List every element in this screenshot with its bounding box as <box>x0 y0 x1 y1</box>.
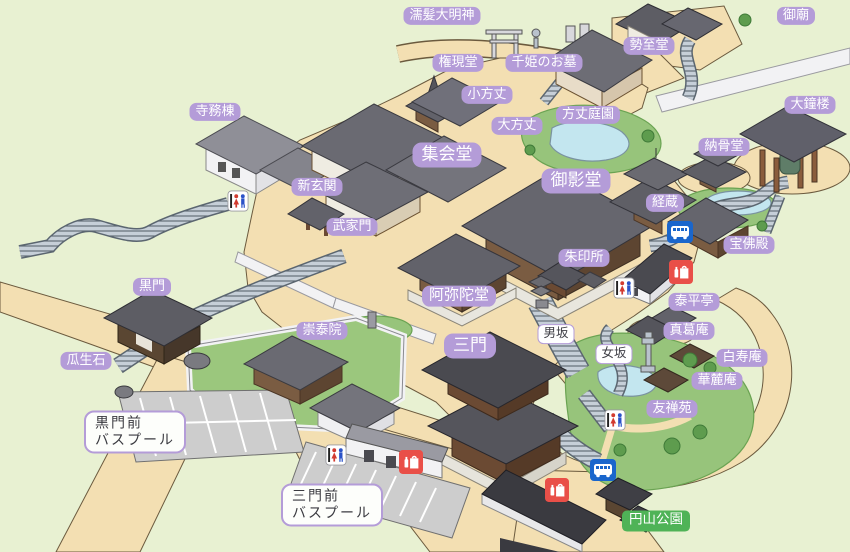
map-illustration <box>0 0 850 552</box>
temple-grounds-map: 濡髪大明神御廟権現堂千姫のお墓勢至堂小方丈大方丈方丈庭園大鐘楼寺務棟集会堂納骨堂… <box>0 0 850 552</box>
